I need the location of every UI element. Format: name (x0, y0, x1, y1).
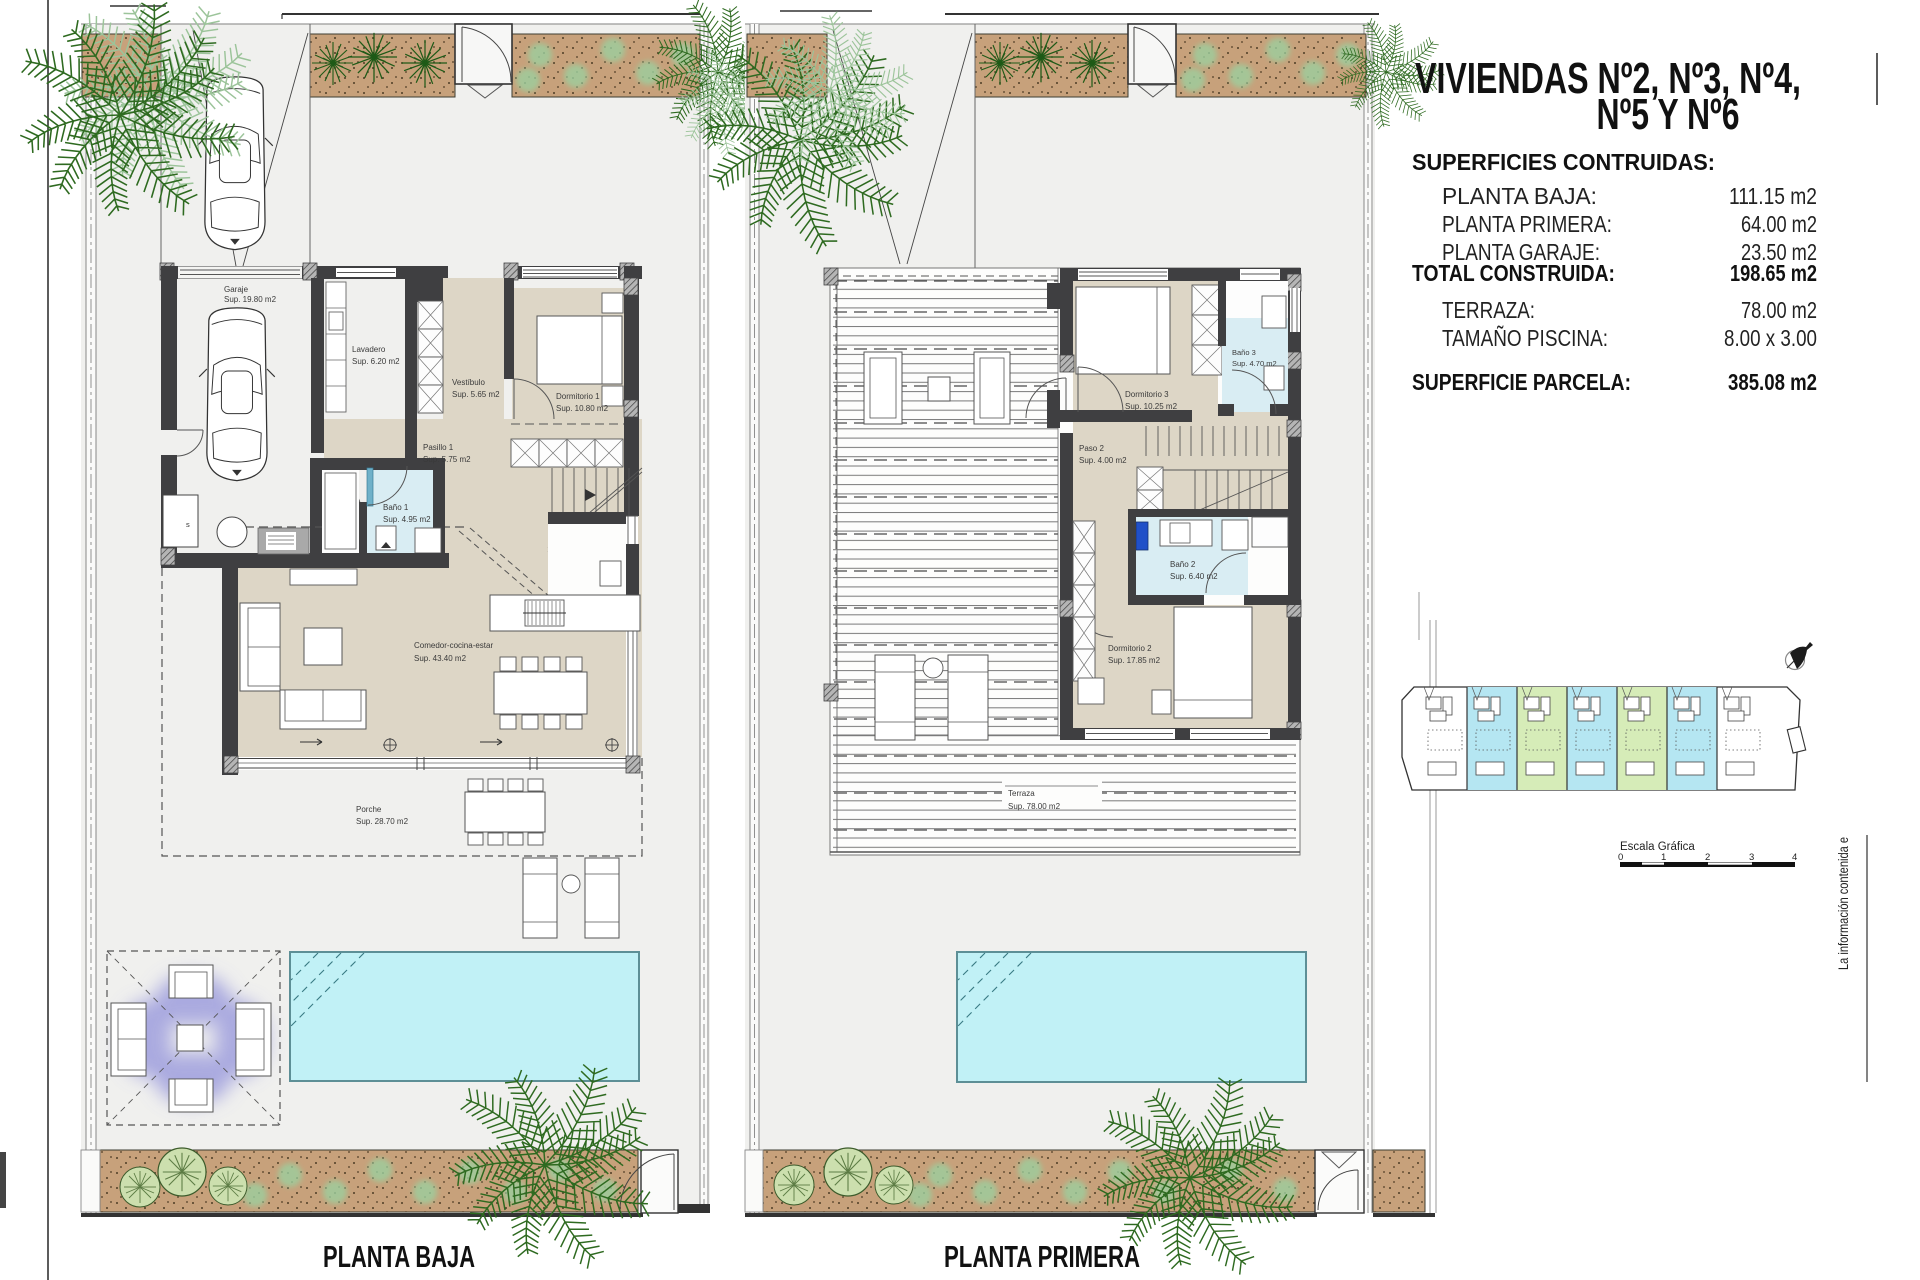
svg-text:385.08 m2: 385.08 m2 (1728, 369, 1817, 395)
svg-text:TAMAÑO PISCINA:: TAMAÑO PISCINA: (1442, 325, 1608, 351)
svg-text:Lavadero: Lavadero (352, 345, 386, 354)
svg-text:Sup. 4.70 m2: Sup. 4.70 m2 (1232, 359, 1277, 368)
svg-text:Sup. 6.40 m2: Sup. 6.40 m2 (1170, 572, 1218, 581)
svg-text:Comedor-cocina-estar: Comedor-cocina-estar (414, 641, 493, 650)
svg-text:Sup. 10.80 m2: Sup. 10.80 m2 (556, 404, 609, 413)
svg-text:SUPERFICIES CONTRUIDAS:: SUPERFICIES CONTRUIDAS: (1412, 149, 1715, 175)
svg-text:78.00 m2: 78.00 m2 (1741, 297, 1817, 323)
svg-text:PLANTA BAJA:: PLANTA BAJA: (1442, 183, 1597, 209)
svg-text:Sup. 10.25 m2: Sup. 10.25 m2 (1125, 402, 1178, 411)
svg-text:1: 1 (1661, 852, 1666, 863)
svg-text:Dormitorio 1: Dormitorio 1 (556, 392, 600, 401)
svg-text:Dormitorio 3: Dormitorio 3 (1125, 390, 1169, 399)
svg-text:3: 3 (1749, 852, 1754, 863)
svg-text:La información contenida e: La información contenida e (1836, 837, 1851, 970)
svg-text:198.65 m2: 198.65 m2 (1730, 260, 1817, 286)
svg-text:Baño 2: Baño 2 (1170, 560, 1196, 569)
svg-text:Porche: Porche (356, 805, 382, 814)
svg-text:Dormitorio 2: Dormitorio 2 (1108, 644, 1152, 653)
svg-text:Sup. 4.00 m2: Sup. 4.00 m2 (1079, 456, 1127, 465)
svg-text:0: 0 (1618, 852, 1623, 863)
svg-text:111.15 m2: 111.15 m2 (1729, 183, 1817, 209)
svg-text:Sup. 43.40 m2: Sup. 43.40 m2 (414, 654, 467, 663)
svg-text:TOTAL CONSTRUIDA:: TOTAL CONSTRUIDA: (1412, 260, 1615, 286)
svg-text:Sup. 4.95 m2: Sup. 4.95 m2 (383, 515, 431, 524)
svg-text:4: 4 (1792, 852, 1797, 863)
svg-text:Escala Gráfica: Escala Gráfica (1620, 841, 1695, 853)
svg-text:s: s (186, 520, 190, 529)
svg-text:PLANTA PRIMERA: PLANTA PRIMERA (944, 1239, 1140, 1274)
svg-text:Sup. 5.65 m2: Sup. 5.65 m2 (452, 390, 500, 399)
svg-text:PLANTA PRIMERA:: PLANTA PRIMERA: (1442, 211, 1612, 237)
svg-text:Pasillo 1: Pasillo 1 (423, 443, 454, 452)
svg-text:Sup. 6.20 m2: Sup. 6.20 m2 (352, 357, 400, 366)
svg-text:Sup. 19.80 m2: Sup. 19.80 m2 (224, 295, 277, 304)
svg-text:PLANTA BAJA: PLANTA BAJA (323, 1239, 475, 1274)
svg-text:Sup. 78.00 m2: Sup. 78.00 m2 (1008, 802, 1061, 811)
svg-text:TERRAZA:: TERRAZA: (1442, 297, 1535, 323)
svg-text:8.00 x 3.00: 8.00 x 3.00 (1724, 325, 1817, 351)
svg-text:2: 2 (1705, 852, 1710, 863)
svg-text:Baño 3: Baño 3 (1232, 348, 1256, 357)
svg-text:Terraza: Terraza (1008, 789, 1035, 798)
svg-text:Sup. 5.75 m2: Sup. 5.75 m2 (423, 455, 471, 464)
svg-text:Vestíbulo: Vestíbulo (452, 378, 485, 387)
svg-text:Paso 2: Paso 2 (1079, 444, 1104, 453)
svg-text:64.00 m2: 64.00 m2 (1741, 211, 1817, 237)
svg-text:Garaje: Garaje (224, 285, 249, 294)
svg-text:Nº5 Y Nº6: Nº5 Y Nº6 (1597, 90, 1740, 139)
svg-text:Baño 1: Baño 1 (383, 503, 409, 512)
svg-text:Sup. 28.70 m2: Sup. 28.70 m2 (356, 817, 409, 826)
svg-text:SUPERFICIE PARCELA:: SUPERFICIE PARCELA: (1412, 369, 1631, 395)
svg-text:Sup. 17.85 m2: Sup. 17.85 m2 (1108, 656, 1161, 665)
